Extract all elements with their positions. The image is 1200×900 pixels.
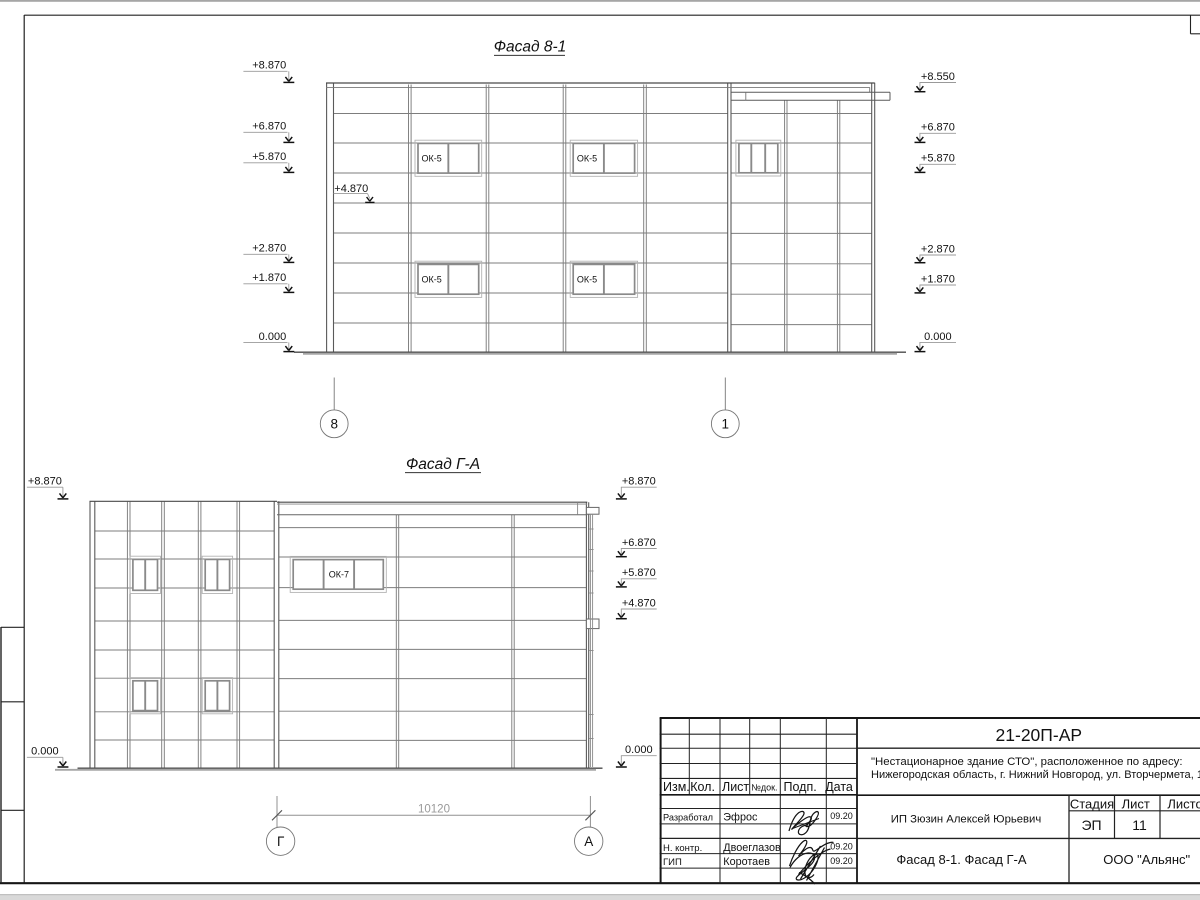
svg-text:ОК-5: ОК-5 [422,153,442,163]
svg-text:21-20П-АР: 21-20П-АР [996,725,1083,745]
svg-text:ОК-7: ОК-7 [329,570,349,580]
svg-text:8: 8 [330,417,338,432]
svg-text:Н. контр.: Н. контр. [663,843,702,854]
svg-text:Эфрос: Эфрос [723,812,758,824]
svg-text:0.000: 0.000 [31,746,59,758]
svg-text:ОК-5: ОК-5 [422,275,442,285]
svg-text:ГИП: ГИП [663,857,682,868]
svg-text:№док.: №док. [751,782,777,792]
svg-text:Кол.: Кол. [690,780,715,794]
svg-text:ЭП: ЭП [1081,817,1101,833]
svg-text:ООО "Альянс": ООО "Альянс" [1103,852,1190,867]
svg-text:"Нестационарное здание СТО", р: "Нестационарное здание СТО", расположенн… [871,756,1183,768]
svg-text:09.20: 09.20 [830,856,853,866]
svg-text:+8.870: +8.870 [252,60,286,72]
svg-text:+8.550: +8.550 [921,71,955,83]
svg-text:Фасад Г-А: Фасад Г-А [406,456,480,473]
svg-text:+8.870: +8.870 [622,476,656,488]
svg-text:ОК-5: ОК-5 [577,153,597,163]
svg-text:Коротаев: Коротаев [723,856,770,868]
svg-text:0.000: 0.000 [924,331,952,343]
svg-text:09.20: 09.20 [830,841,853,851]
svg-text:Дата: Дата [825,780,853,794]
svg-text:+5.870: +5.870 [622,567,656,579]
svg-text:11: 11 [1132,817,1147,833]
svg-text:+6.870: +6.870 [252,121,286,133]
svg-text:Стадия: Стадия [1070,796,1114,811]
svg-text:Подп.: Подп. [784,780,817,794]
svg-text:Двоеглазов: Двоеглазов [723,842,781,854]
svg-text:1: 1 [722,417,730,432]
svg-text:Фасад 8-1. Фасад Г-А: Фасад 8-1. Фасад Г-А [896,852,1026,867]
svg-text:+8.870: +8.870 [28,476,62,488]
svg-text:Нижегородская область, г. Нижн: Нижегородская область, г. Нижний Новгоро… [871,769,1200,781]
svg-text:+2.870: +2.870 [921,243,955,255]
svg-text:Разработал: Разработал [663,813,713,823]
svg-text:+4.870: +4.870 [622,597,656,609]
svg-text:+6.870: +6.870 [622,537,656,549]
svg-text:Лист: Лист [1122,796,1150,811]
svg-text:Фасад 8-1: Фасад 8-1 [494,39,567,56]
svg-text:Листов: Листов [1167,796,1200,811]
svg-text:А: А [584,834,593,849]
svg-text:0.000: 0.000 [259,331,287,343]
svg-text:Изм.: Изм. [663,780,690,794]
svg-text:ОК-5: ОК-5 [577,275,597,285]
svg-text:+4.870: +4.870 [334,183,368,195]
svg-text:0.000: 0.000 [625,744,653,756]
svg-text:Лист: Лист [722,780,749,794]
svg-text:Г: Г [277,834,285,849]
svg-text:+1.870: +1.870 [921,273,955,285]
svg-text:+2.870: +2.870 [252,243,286,255]
svg-text:09.20: 09.20 [830,811,853,821]
svg-text:+1.870: +1.870 [252,272,286,284]
svg-text:10120: 10120 [418,804,450,816]
svg-text:+5.870: +5.870 [252,151,286,163]
svg-text:+5.870: +5.870 [921,153,955,165]
svg-text:+6.870: +6.870 [921,122,955,134]
svg-text:ИП Зюзин Алексей Юрьевич: ИП Зюзин Алексей Юрьевич [891,813,1042,825]
